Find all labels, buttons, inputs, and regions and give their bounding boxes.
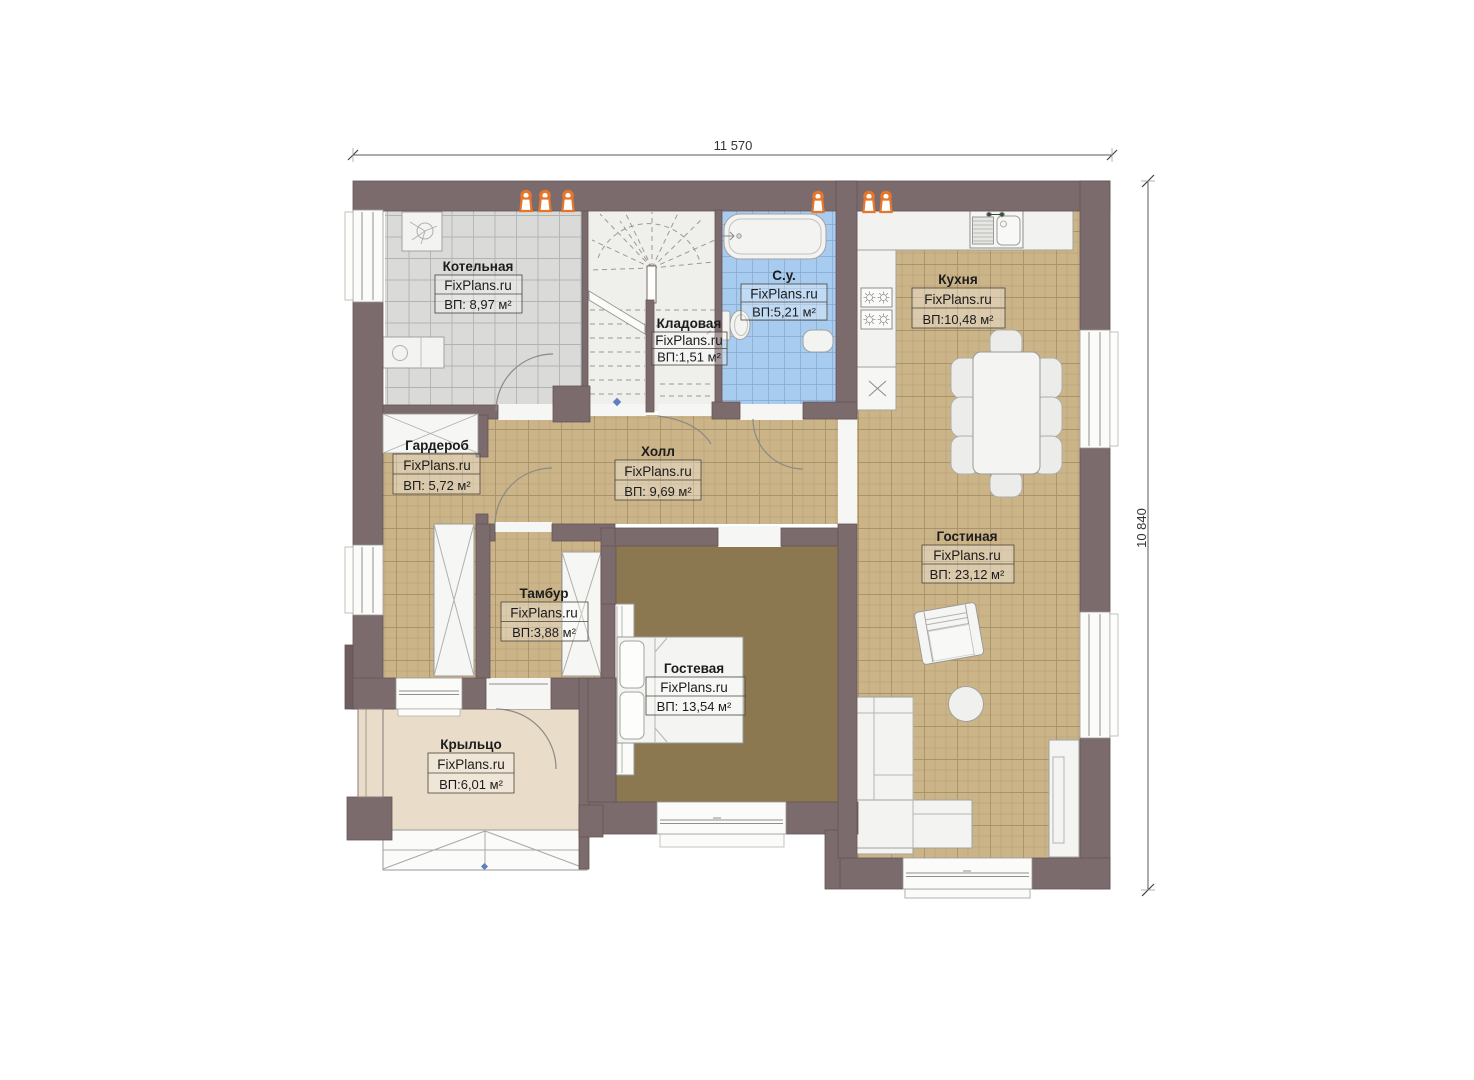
svg-text:FixPlans.ru: FixPlans.ru xyxy=(924,292,992,307)
svg-text:ВП: 8,97 м²: ВП: 8,97 м² xyxy=(444,297,512,312)
svg-text:Котельная: Котельная xyxy=(443,259,514,274)
svg-text:Гостиная: Гостиная xyxy=(936,529,997,544)
svg-text:FixPlans.ru: FixPlans.ru xyxy=(403,458,471,473)
svg-text:FixPlans.ru: FixPlans.ru xyxy=(655,333,723,348)
svg-text:FixPlans.ru: FixPlans.ru xyxy=(624,464,692,479)
svg-text:ВП:5,21 м²: ВП:5,21 м² xyxy=(752,304,816,319)
svg-text:FixPlans.ru: FixPlans.ru xyxy=(660,680,728,695)
svg-text:FixPlans.ru: FixPlans.ru xyxy=(510,606,578,621)
svg-text:ВП:1,51 м²: ВП:1,51 м² xyxy=(657,350,721,365)
svg-text:С.у.: С.у. xyxy=(772,268,796,283)
svg-text:Кухня: Кухня xyxy=(938,272,977,287)
svg-text:ВП:3,88 м²: ВП:3,88 м² xyxy=(512,625,576,640)
svg-text:Холл: Холл xyxy=(641,444,675,459)
svg-text:Гостевая: Гостевая xyxy=(664,661,724,676)
svg-text:10 840: 10 840 xyxy=(1134,508,1149,548)
svg-text:ВП: 9,69 м²: ВП: 9,69 м² xyxy=(624,484,692,499)
svg-text:Тамбур: Тамбур xyxy=(520,586,569,601)
svg-text:ВП: 23,12 м²: ВП: 23,12 м² xyxy=(930,567,1005,582)
svg-text:ВП: 13,54 м²: ВП: 13,54 м² xyxy=(657,699,732,714)
svg-text:ВП:10,48 м²: ВП:10,48 м² xyxy=(922,312,994,327)
svg-text:Гардероб: Гардероб xyxy=(405,438,469,453)
svg-text:11 570: 11 570 xyxy=(714,138,753,153)
svg-text:FixPlans.ru: FixPlans.ru xyxy=(933,548,1001,563)
svg-text:FixPlans.ru: FixPlans.ru xyxy=(444,278,512,293)
svg-text:Крыльцо: Крыльцо xyxy=(440,737,501,752)
svg-text:Кладовая: Кладовая xyxy=(657,316,722,331)
svg-text:FixPlans.ru: FixPlans.ru xyxy=(437,757,505,772)
svg-text:ВП: 5,72 м²: ВП: 5,72 м² xyxy=(403,478,471,493)
svg-text:FixPlans.ru: FixPlans.ru xyxy=(750,286,818,301)
svg-text:ВП:6,01 м²: ВП:6,01 м² xyxy=(439,777,503,792)
